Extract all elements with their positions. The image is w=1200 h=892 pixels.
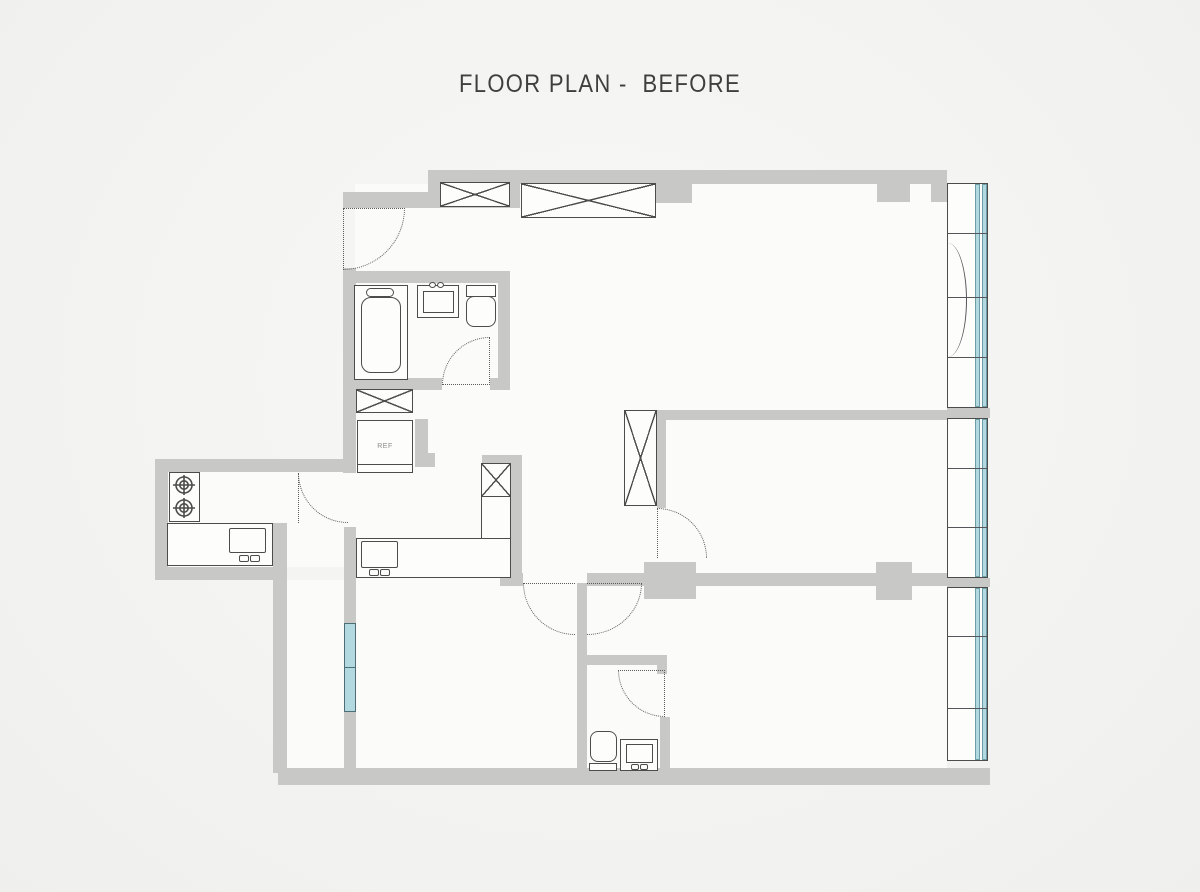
floor-plan: FLOOR PLAN - BEFORE — [0, 0, 1200, 892]
desk-knob — [369, 569, 379, 576]
wall — [586, 655, 667, 665]
wall — [657, 410, 947, 420]
wall — [344, 712, 356, 773]
desk-knob — [380, 569, 390, 576]
bathtub-headrest — [366, 288, 394, 297]
floor-side-strip — [287, 580, 344, 768]
bathroom-sink-basin — [423, 291, 454, 313]
wall — [947, 578, 990, 587]
burner-icon — [170, 473, 198, 520]
faucet-knob — [429, 282, 436, 288]
kitchen-door-leaf — [298, 473, 299, 523]
wall — [520, 170, 947, 184]
wall — [273, 523, 287, 773]
wall — [510, 455, 522, 586]
window-mullion — [948, 527, 987, 528]
wc-sink-knob — [631, 764, 639, 770]
kitchen-counter-knob — [250, 555, 260, 562]
toilet-bowl — [466, 296, 496, 327]
kitchen-counter-monitor — [229, 528, 266, 553]
window-glass — [982, 419, 987, 577]
wall — [155, 567, 287, 580]
washing-machine — [356, 389, 413, 413]
wall — [577, 583, 587, 773]
wall — [423, 453, 435, 467]
window-mullion — [948, 297, 987, 298]
wall — [155, 459, 345, 472]
wc-sink-basin — [626, 744, 653, 763]
wall — [498, 271, 510, 390]
wc-sink-knob — [640, 764, 648, 770]
top-wardrobe-large — [521, 183, 656, 218]
wall — [877, 184, 910, 202]
page-title: FLOOR PLAN - BEFORE — [72, 70, 1128, 99]
wc-toilet-bowl — [590, 731, 617, 762]
window-glass — [975, 588, 980, 760]
refrigerator: REF — [357, 420, 413, 473]
wall — [344, 527, 356, 623]
faucet-knob — [437, 282, 444, 288]
window-mullion — [948, 468, 987, 469]
window-mullion — [948, 357, 987, 358]
bedroom-closet — [624, 410, 657, 506]
kitchen-counter-knob — [239, 555, 249, 562]
window-glass — [975, 419, 980, 577]
window-glass — [982, 588, 987, 760]
desk-monitor — [361, 541, 398, 568]
window-mullion — [948, 708, 987, 709]
wall — [490, 378, 510, 390]
window-glass — [982, 184, 987, 407]
wall-pillar — [876, 562, 912, 600]
wall — [343, 192, 428, 208]
refrigerator-door-line — [358, 464, 412, 465]
left-window-divider — [344, 667, 356, 668]
wall — [931, 184, 947, 202]
top-wardrobe-small — [440, 182, 510, 207]
wall — [343, 271, 510, 283]
window-glass — [975, 184, 980, 407]
window-mullion — [948, 233, 987, 234]
gas-stove — [169, 472, 200, 522]
wall — [660, 717, 670, 773]
wall — [947, 408, 990, 418]
wall — [657, 410, 666, 508]
wall — [656, 184, 692, 203]
desk-cabinet — [481, 463, 511, 497]
bathtub-basin — [361, 297, 401, 373]
window-mullion — [948, 636, 987, 637]
wc-toilet-tank — [589, 763, 617, 771]
wall-pillar — [644, 562, 696, 599]
